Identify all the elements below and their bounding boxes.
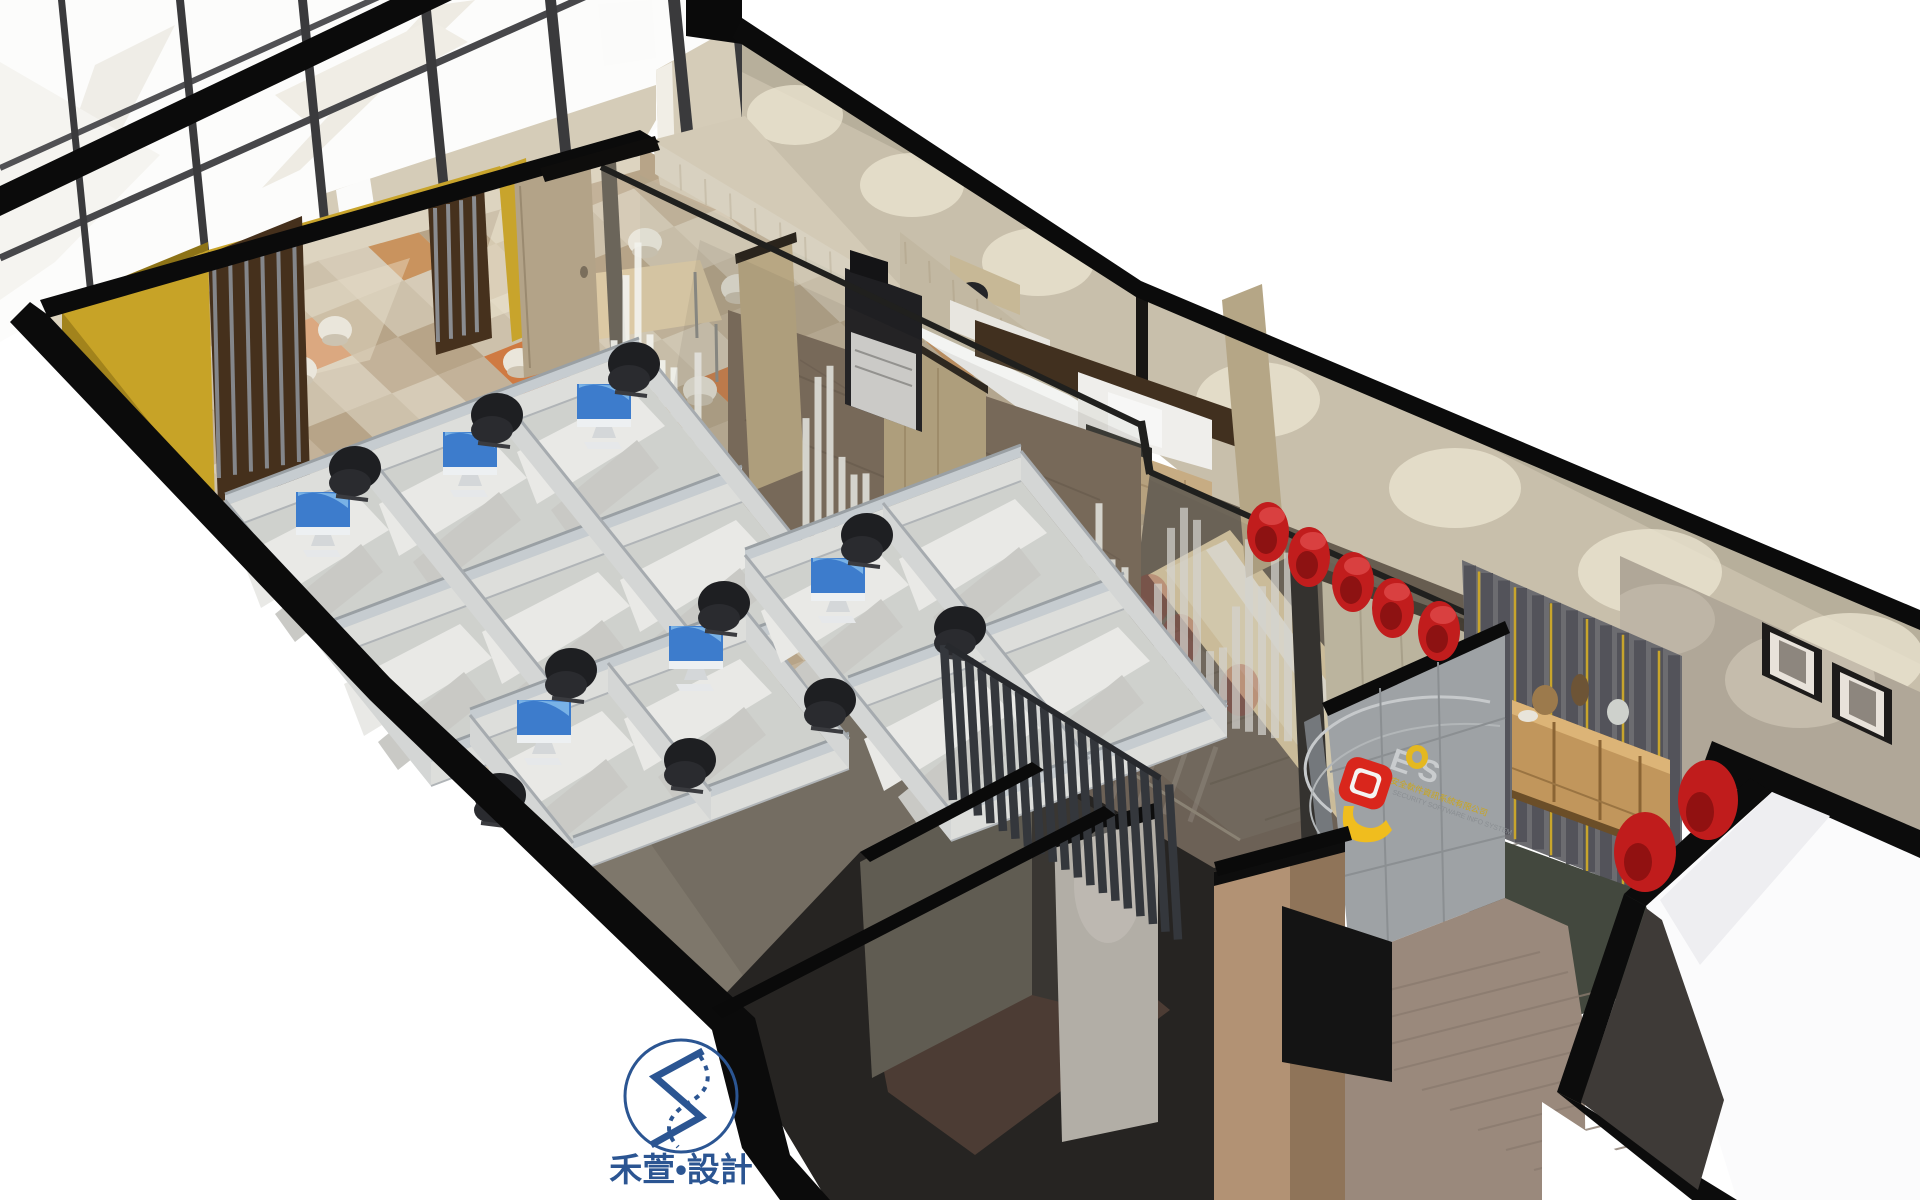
svg-text:禾萱•設計: 禾萱•設計	[609, 1151, 753, 1188]
